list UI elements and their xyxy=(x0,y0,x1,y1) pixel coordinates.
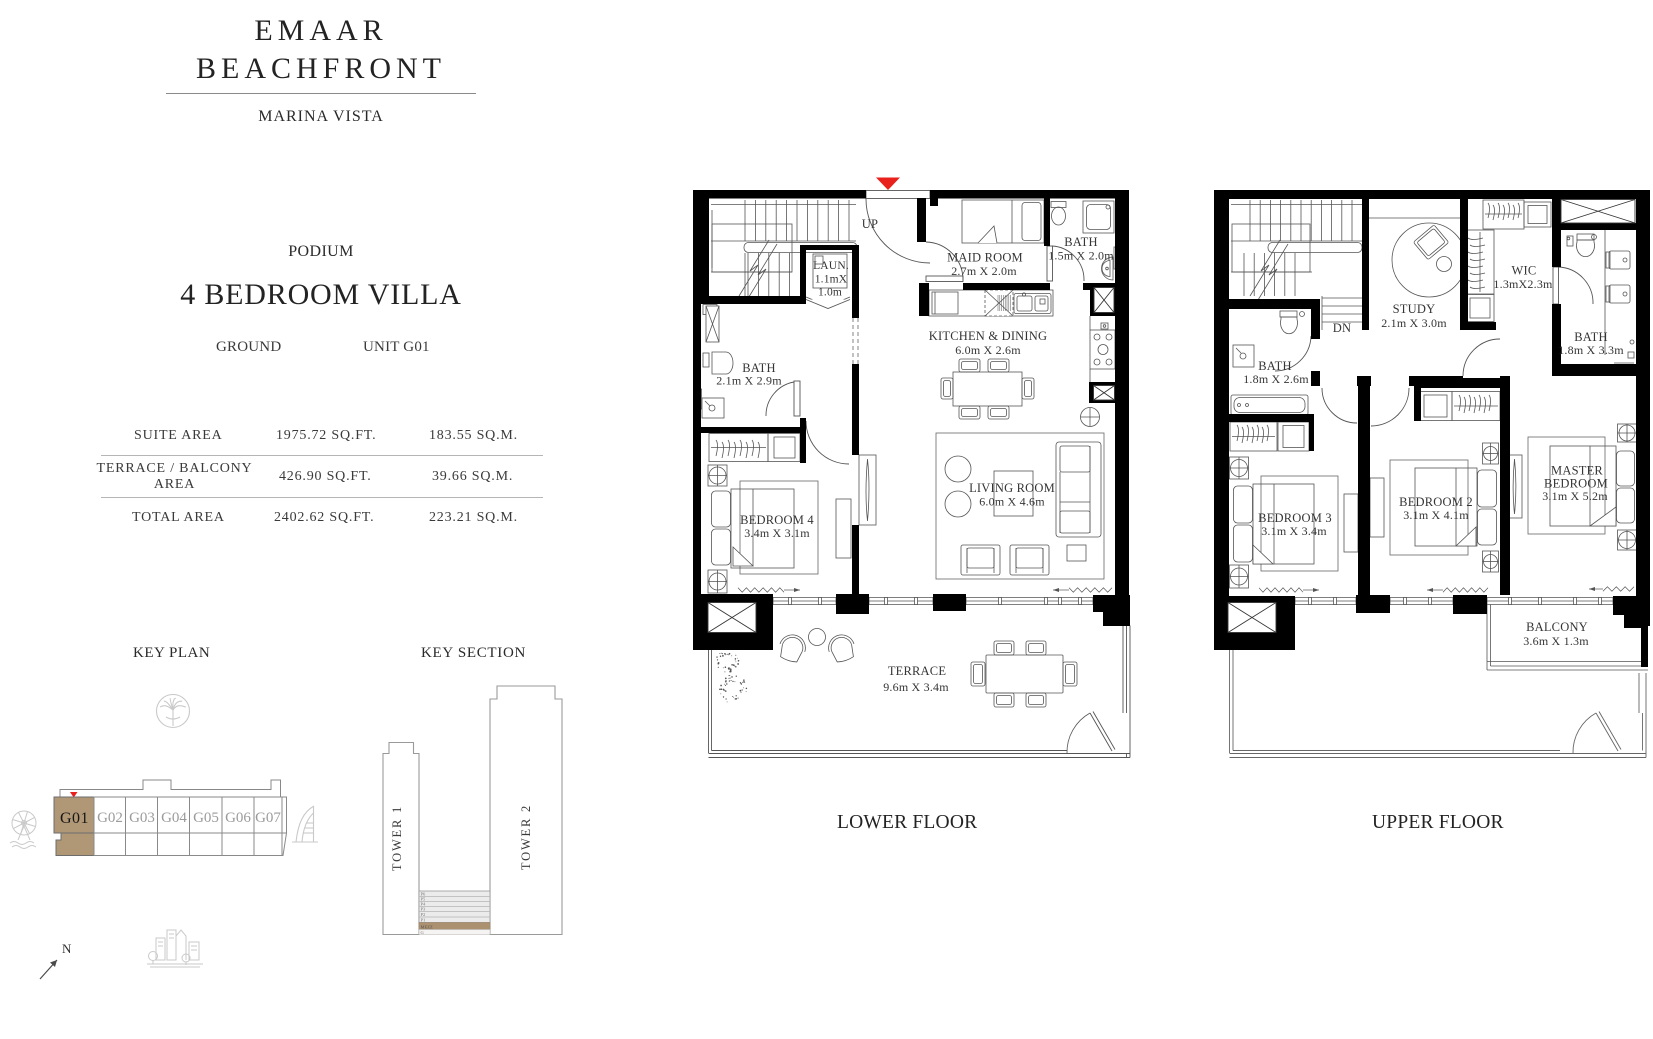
svg-text:3.1m X 3.4m: 3.1m X 3.4m xyxy=(1261,524,1327,538)
svg-text:1.0m: 1.0m xyxy=(818,287,842,299)
svg-text:2.1m X 3.0m: 2.1m X 3.0m xyxy=(1381,316,1447,330)
svg-text:LIVING ROOM: LIVING ROOM xyxy=(969,481,1055,495)
svg-text:BATH: BATH xyxy=(1064,235,1097,249)
svg-text:P2: P2 xyxy=(421,912,426,917)
svg-text:1.5m X 2.0m: 1.5m X 2.0m xyxy=(1048,249,1114,263)
svg-text:3.6m X 1.3m: 3.6m X 1.3m xyxy=(1523,634,1589,648)
svg-text:9.6m X 3.4m: 9.6m X 3.4m xyxy=(883,680,949,694)
svg-text:1.1mX: 1.1mX xyxy=(815,274,848,286)
svg-text:N: N xyxy=(62,941,72,956)
svg-text:1.8m X 3.3m: 1.8m X 3.3m xyxy=(1558,343,1624,357)
svg-text:BEDROOM 3: BEDROOM 3 xyxy=(1258,511,1332,525)
svg-text:STUDY: STUDY xyxy=(1393,302,1436,316)
svg-text:MAID ROOM: MAID ROOM xyxy=(947,251,1023,265)
svg-text:1.3mX2.3m: 1.3mX2.3m xyxy=(1493,277,1553,291)
svg-text:6.0m X 2.6m: 6.0m X 2.6m xyxy=(955,343,1021,357)
svg-text:LAUN.: LAUN. xyxy=(813,260,849,272)
svg-text:P3: P3 xyxy=(421,907,427,912)
svg-text:DN: DN xyxy=(1333,321,1351,335)
svg-text:TOWER 2: TOWER 2 xyxy=(519,804,533,870)
svg-text:BEDROOM 4: BEDROOM 4 xyxy=(740,513,814,527)
svg-text:G02: G02 xyxy=(97,810,123,826)
svg-text:TERRACE: TERRACE xyxy=(888,664,947,678)
svg-text:G03: G03 xyxy=(129,810,155,826)
svg-text:P1: P1 xyxy=(421,918,426,923)
svg-text:BALCONY: BALCONY xyxy=(1526,620,1588,634)
svg-text:2.1m X 2.9m: 2.1m X 2.9m xyxy=(716,374,782,388)
svg-text:G01: G01 xyxy=(60,810,89,827)
svg-text:TOWER 1: TOWER 1 xyxy=(390,805,404,871)
svg-text:6.0m X 4.6m: 6.0m X 4.6m xyxy=(979,495,1045,509)
svg-text:G05: G05 xyxy=(193,810,219,826)
svg-text:3.1m X 5.2m: 3.1m X 5.2m xyxy=(1542,489,1608,503)
svg-text:BEDROOM 2: BEDROOM 2 xyxy=(1399,495,1473,509)
svg-text:3.1m X 4.1m: 3.1m X 4.1m xyxy=(1403,508,1469,522)
svg-text:2.7m X 2.0m: 2.7m X 2.0m xyxy=(951,264,1017,278)
svg-text:1.8m X 2.6m: 1.8m X 2.6m xyxy=(1243,372,1309,386)
svg-text:UP: UP xyxy=(862,217,878,231)
svg-text:WIC: WIC xyxy=(1512,264,1537,278)
svg-text:MASTER: MASTER xyxy=(1551,464,1603,478)
svg-text:KITCHEN & DINING: KITCHEN & DINING xyxy=(929,329,1047,343)
svg-text:G04: G04 xyxy=(161,810,187,826)
svg-text:3.4m X 3.1m: 3.4m X 3.1m xyxy=(744,526,810,540)
svg-text:BATH: BATH xyxy=(1574,330,1607,344)
svg-text:G06: G06 xyxy=(225,810,251,826)
svg-text:MEZZ: MEZZ xyxy=(421,925,433,930)
svg-text:BATH: BATH xyxy=(1258,359,1291,373)
svg-text:G07: G07 xyxy=(255,810,281,826)
